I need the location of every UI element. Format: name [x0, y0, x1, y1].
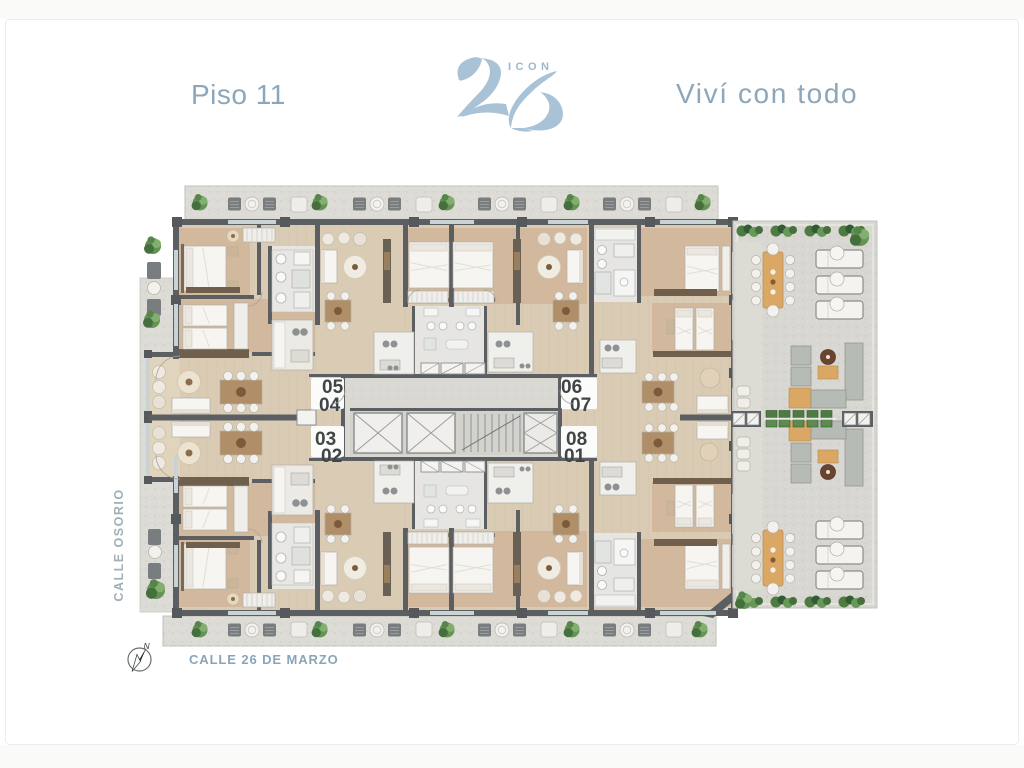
- svg-text:01: 01: [564, 446, 586, 467]
- svg-text:CALLE OSORIO: CALLE OSORIO: [112, 488, 126, 601]
- svg-text:02: 02: [321, 446, 342, 467]
- svg-text:Viví con todo: Viví con todo: [676, 78, 858, 109]
- svg-text:ICON: ICON: [508, 61, 554, 73]
- svg-text:07: 07: [570, 395, 591, 416]
- svg-text:N: N: [144, 641, 151, 651]
- svg-text:Piso 11: Piso 11: [191, 79, 286, 110]
- svg-text:CALLE 26 DE MARZO: CALLE 26 DE MARZO: [189, 652, 339, 667]
- svg-text:04: 04: [319, 395, 341, 416]
